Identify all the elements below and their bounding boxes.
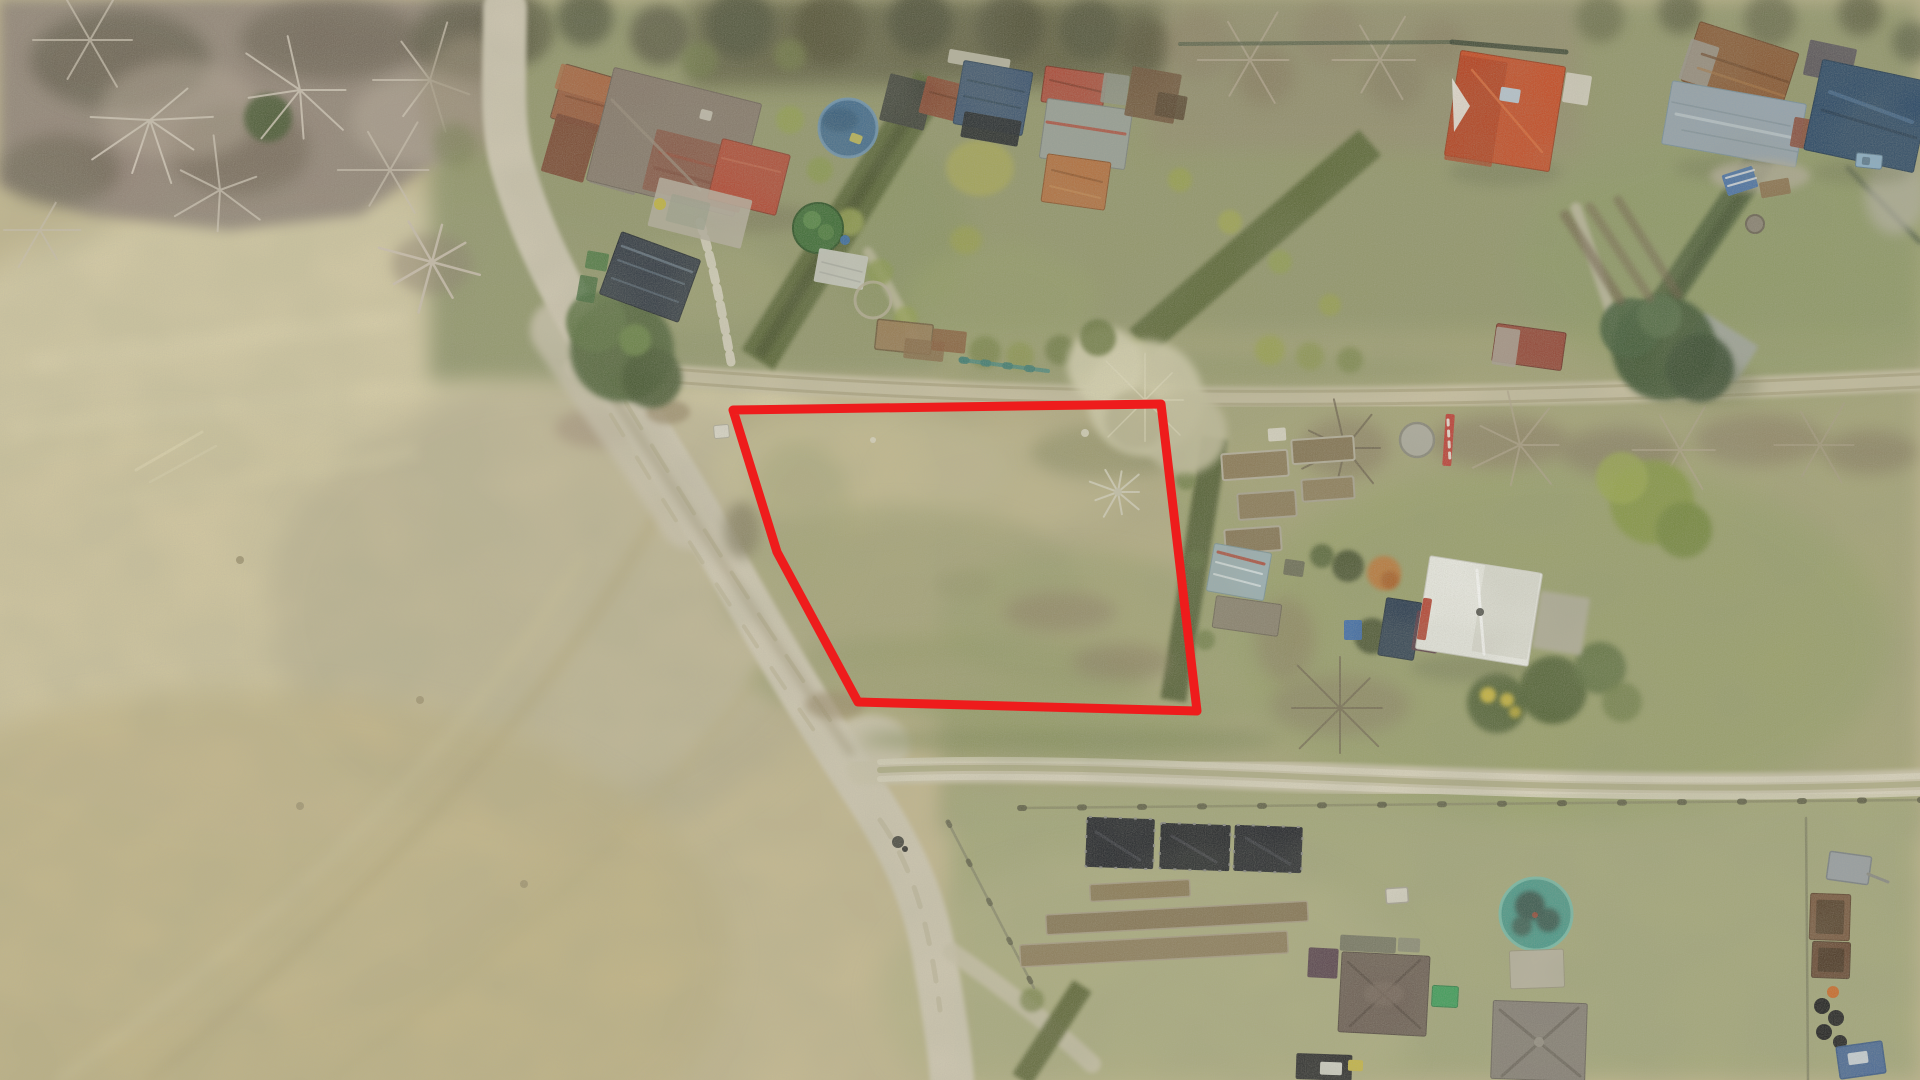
aerial-photo — [0, 0, 1920, 1080]
aerial-photo-canvas — [0, 0, 1920, 1080]
photo-grain-overlay — [0, 0, 1920, 1080]
